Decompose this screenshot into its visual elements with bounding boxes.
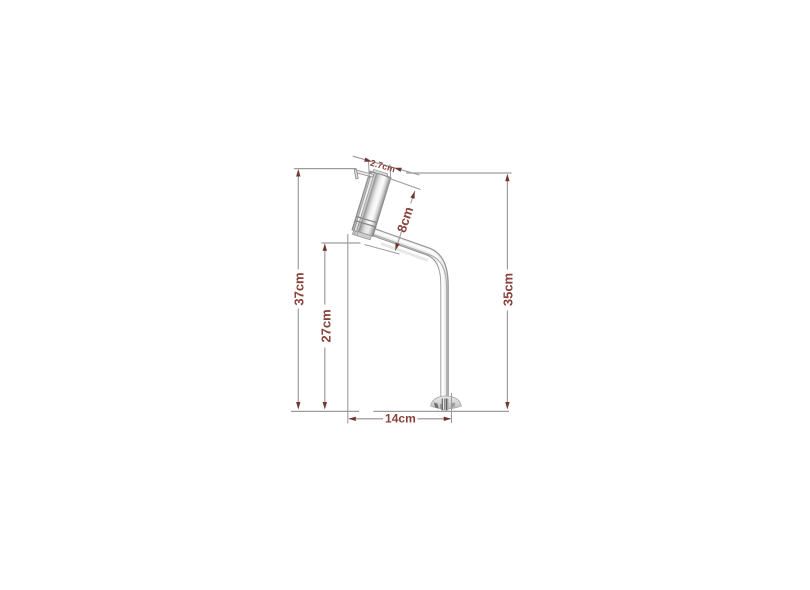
svg-text:35cm: 35cm — [501, 273, 516, 306]
svg-text:8cm: 8cm — [394, 205, 416, 234]
svg-text:14cm: 14cm — [385, 412, 416, 426]
svg-text:37cm: 37cm — [292, 272, 307, 305]
svg-text:27cm: 27cm — [319, 309, 334, 342]
